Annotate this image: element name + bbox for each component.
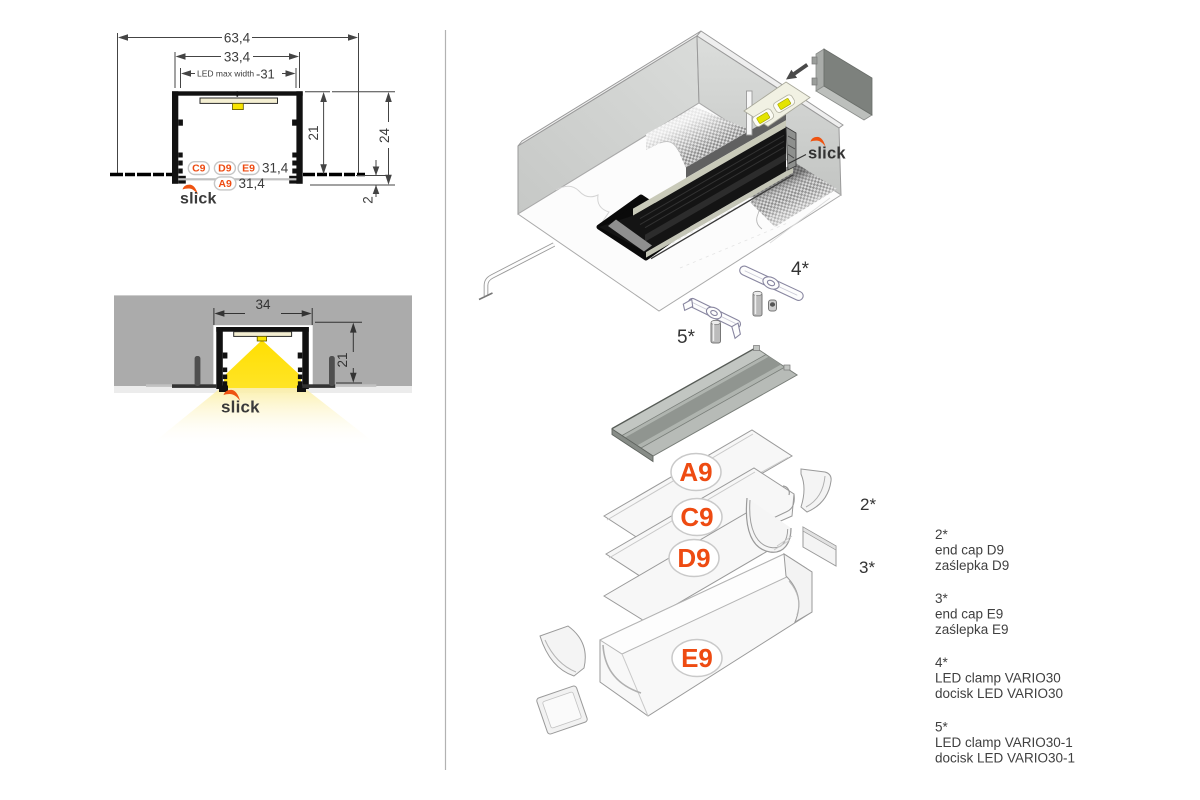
svg-text:A9: A9 (218, 178, 232, 190)
svg-text:zaślepka D9: zaślepka D9 (935, 558, 1009, 573)
svg-text:2: 2 (361, 196, 376, 204)
svg-text:C9: C9 (680, 502, 713, 532)
svg-text:31,4: 31,4 (262, 161, 289, 176)
svg-text:E9: E9 (242, 163, 255, 175)
svg-text:21: 21 (306, 125, 321, 140)
svg-text:C9: C9 (192, 163, 206, 175)
svg-text:D9: D9 (218, 163, 232, 175)
svg-text:3*: 3* (935, 591, 949, 606)
svg-text:zaślepka E9: zaślepka E9 (935, 622, 1009, 637)
svg-text:4*: 4* (791, 259, 810, 280)
svg-text:slick: slick (180, 191, 217, 208)
svg-text:E9: E9 (681, 643, 713, 673)
svg-text:end cap E9: end cap E9 (935, 607, 1003, 622)
svg-text:5*: 5* (677, 327, 696, 348)
svg-text:-31: -31 (256, 67, 275, 82)
svg-text:docisk LED VARIO30-1: docisk LED VARIO30-1 (935, 751, 1075, 766)
svg-text:33,4: 33,4 (224, 50, 251, 65)
svg-text:LED max width: LED max width (197, 69, 254, 79)
svg-text:slick: slick (221, 398, 260, 417)
svg-text:24: 24 (377, 128, 392, 144)
svg-text:2*: 2* (860, 495, 876, 514)
svg-text:LED clamp VARIO30: LED clamp VARIO30 (935, 671, 1061, 686)
svg-text:LED clamp VARIO30-1: LED clamp VARIO30-1 (935, 735, 1073, 750)
svg-text:4*: 4* (935, 655, 949, 670)
svg-text:5*: 5* (935, 720, 949, 735)
svg-text:D9: D9 (677, 543, 710, 573)
svg-text:docisk LED VARIO30: docisk LED VARIO30 (935, 686, 1063, 701)
svg-text:slick: slick (808, 145, 846, 163)
svg-text:A9: A9 (679, 457, 712, 487)
svg-text:3*: 3* (859, 558, 875, 577)
svg-text:34: 34 (255, 297, 271, 312)
svg-text:21: 21 (335, 352, 350, 367)
svg-text:63,4: 63,4 (224, 31, 251, 46)
svg-text:31,4: 31,4 (239, 176, 266, 191)
svg-text:end cap D9: end cap D9 (935, 543, 1004, 558)
svg-text:2*: 2* (935, 527, 949, 542)
